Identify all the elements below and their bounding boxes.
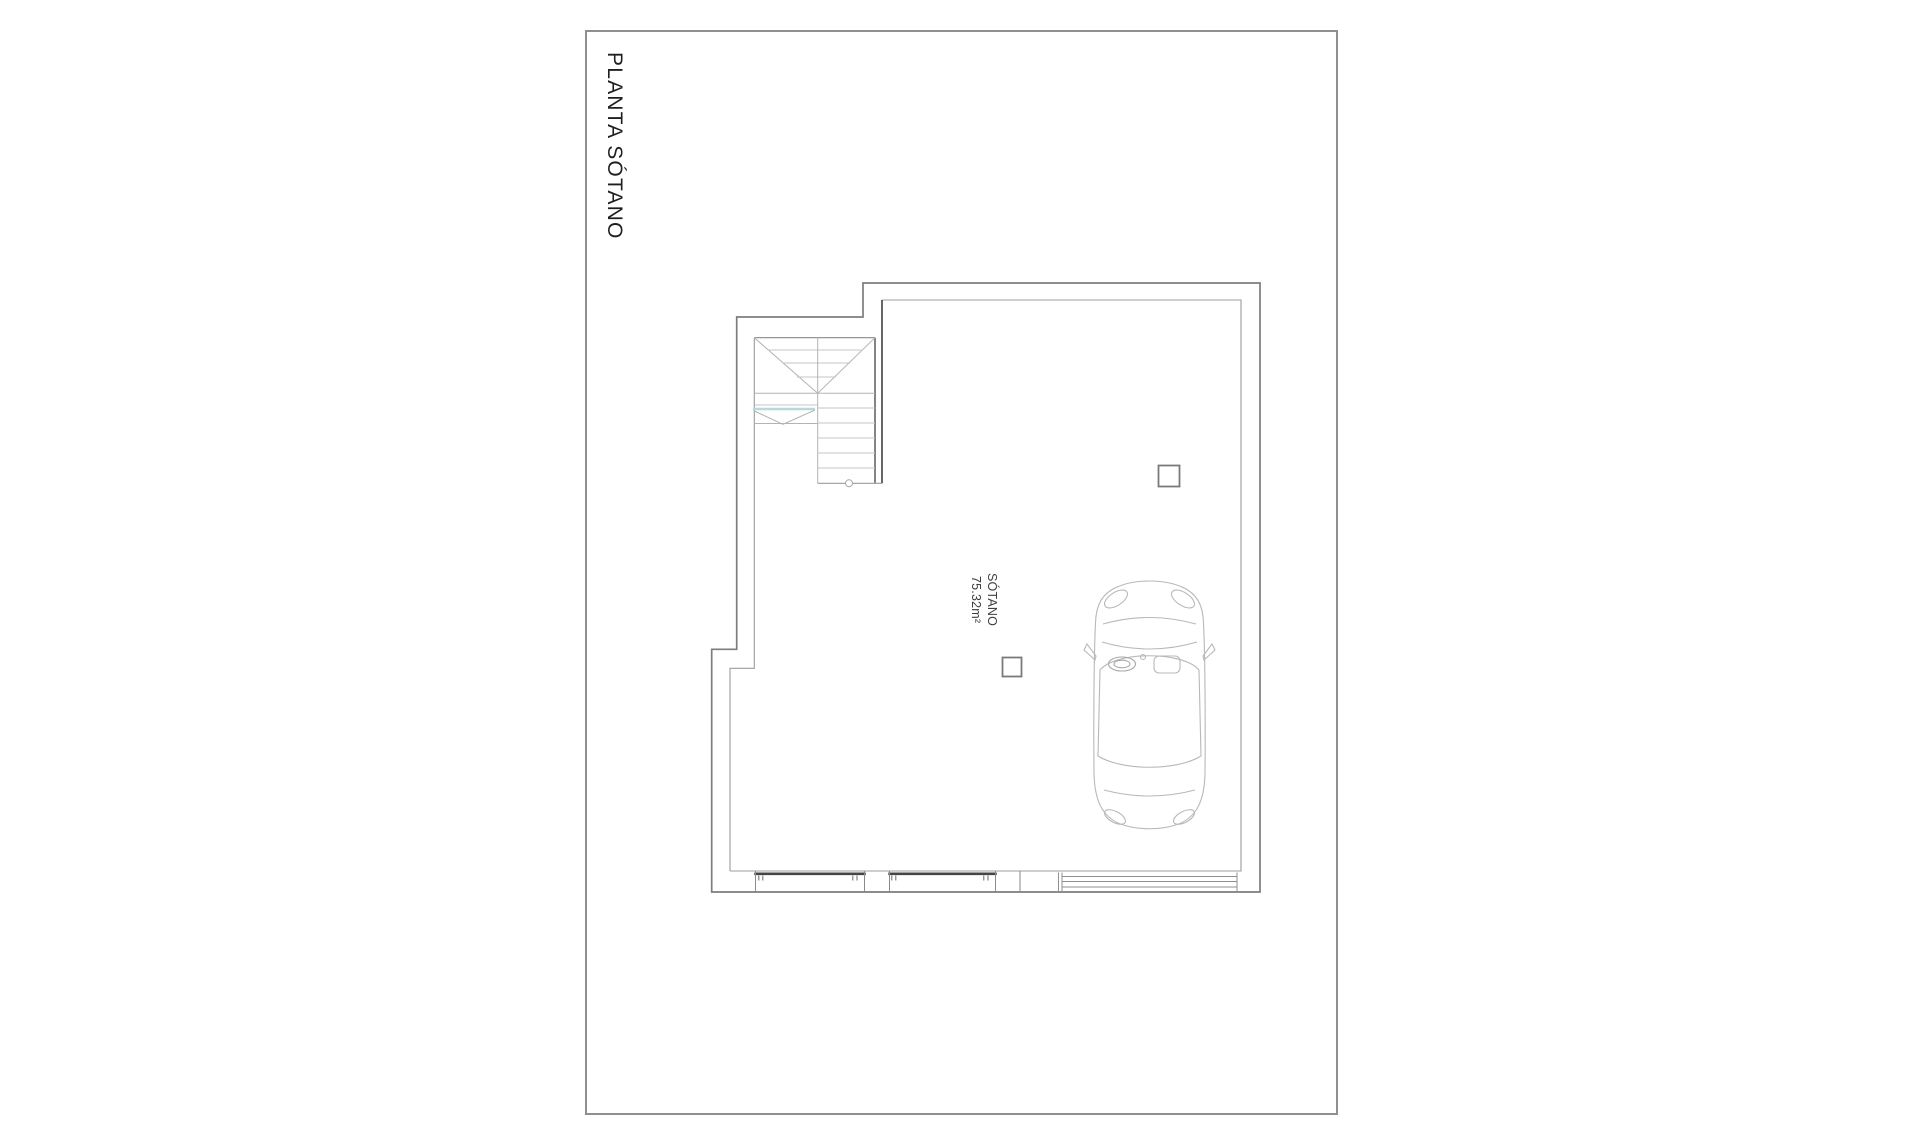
column-marker bbox=[1159, 466, 1180, 487]
room-label: SÓTANO 75.32m² bbox=[964, 571, 1000, 629]
drawing-sheet: PLANTA SÓTANO SÓTANO 75.32m² bbox=[0, 0, 1920, 1140]
column-marker bbox=[1003, 658, 1022, 677]
floor-plan-svg bbox=[0, 0, 1920, 1140]
room-area: 75.32m² bbox=[968, 571, 984, 629]
room-name: SÓTANO bbox=[984, 571, 1000, 629]
stair-newel-marker bbox=[846, 480, 853, 487]
page-title: PLANTA SÓTANO bbox=[599, 52, 626, 232]
